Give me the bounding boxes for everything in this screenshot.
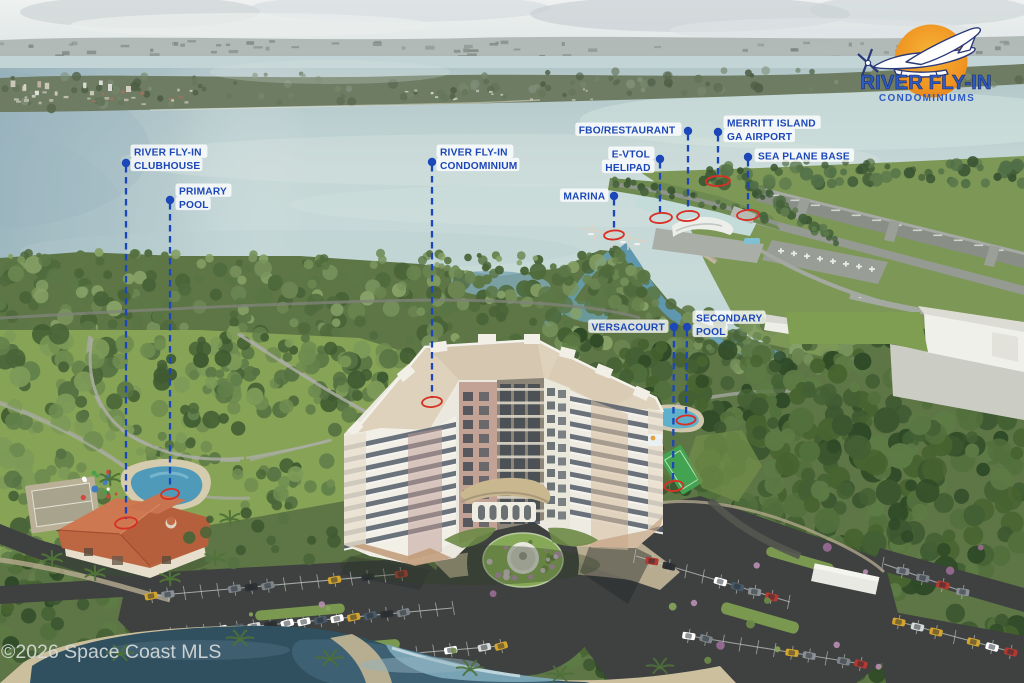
svg-text:CONDOMINIUMS: CONDOMINIUMS: [879, 93, 975, 104]
svg-text:POOL: POOL: [696, 327, 726, 338]
svg-text:SEA PLANE BASE: SEA PLANE BASE: [758, 152, 850, 163]
svg-text:FBO/RESTAURANT: FBO/RESTAURANT: [579, 126, 676, 137]
svg-text:RIVER FLY-IN: RIVER FLY-IN: [860, 71, 991, 94]
svg-text:GA AIRPORT: GA AIRPORT: [727, 132, 793, 143]
svg-text:MERRITT ISLAND: MERRITT ISLAND: [727, 119, 816, 130]
svg-text:E-VTOL: E-VTOL: [612, 150, 650, 161]
svg-text:©2026 Space Coast MLS: ©2026 Space Coast MLS: [1, 641, 221, 663]
svg-text:CONDOMINIUM: CONDOMINIUM: [440, 161, 517, 172]
svg-text:RIVER FLY-IN: RIVER FLY-IN: [440, 148, 508, 159]
svg-text:CLUBHOUSE: CLUBHOUSE: [134, 161, 200, 172]
svg-text:VERSACOURT: VERSACOURT: [592, 323, 666, 334]
svg-text:MARINA: MARINA: [563, 192, 605, 203]
svg-text:PRIMARY: PRIMARY: [179, 187, 227, 198]
svg-text:RIVER FLY-IN: RIVER FLY-IN: [134, 148, 202, 159]
svg-text:SECONDARY: SECONDARY: [696, 314, 763, 325]
svg-text:POOL: POOL: [179, 200, 209, 211]
svg-text:HELIPAD: HELIPAD: [605, 163, 650, 174]
